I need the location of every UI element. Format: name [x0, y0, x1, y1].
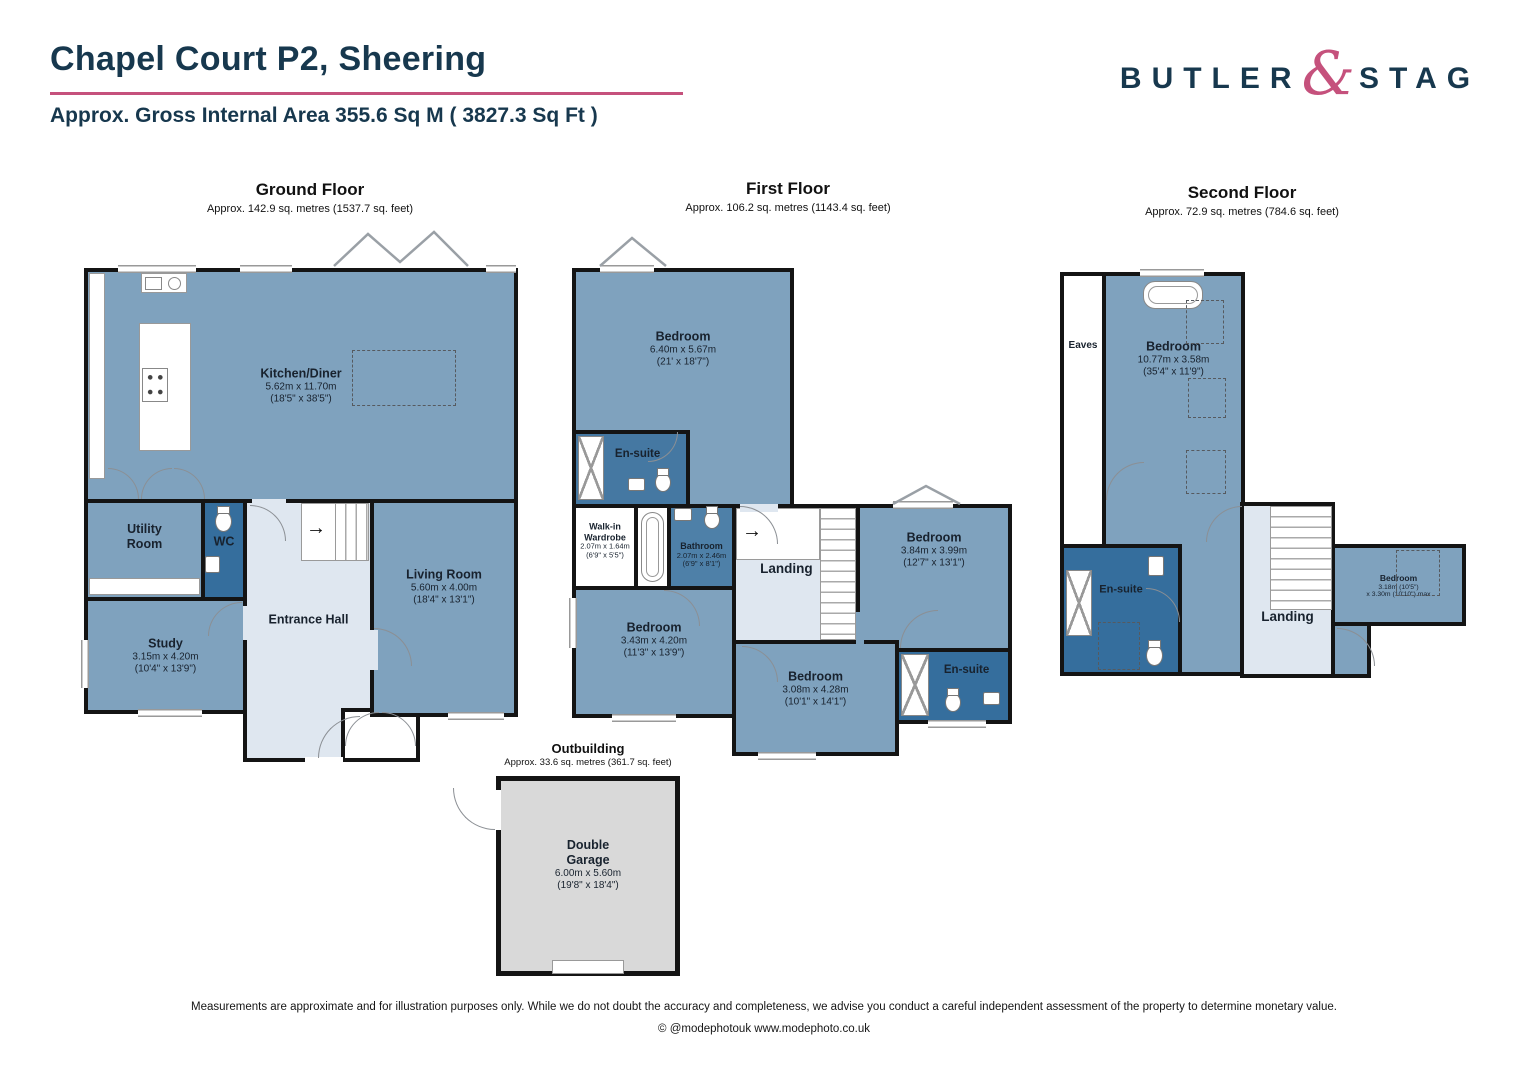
window [1140, 269, 1204, 277]
toilet-icon [655, 468, 671, 492]
shower-icon [1066, 570, 1092, 636]
disclaimer-text: Measurements are approximate and for ill… [0, 1001, 1528, 1013]
second-floor-header: Second Floor Approx. 72.9 sq. metres (78… [1092, 183, 1392, 218]
toilet-icon [1146, 640, 1163, 666]
first-floor-area: Approx. 106.2 sq. metres (1143.4 sq. fee… [638, 202, 938, 214]
room-label: Eaves [1069, 340, 1098, 352]
stove-icon [142, 368, 168, 402]
ground-floor-area: Approx. 142.9 sq. metres (1537.7 sq. fee… [160, 203, 460, 215]
room-label: Bedroom 3.08m x 4.28m (10'1" x 14'1") [782, 670, 848, 709]
stairs-treads [335, 503, 369, 561]
sink-icon [983, 692, 1000, 705]
window [893, 501, 953, 509]
stairs-direction-arrow: → [306, 518, 326, 538]
skylight-dashed [1396, 550, 1440, 596]
room-label: Utility Room [115, 522, 175, 552]
window [569, 598, 577, 648]
room-eaves: Eaves [1060, 272, 1106, 548]
sink-icon [674, 508, 692, 521]
room-label: Entrance Hall [263, 613, 355, 628]
window [758, 752, 816, 760]
photo-credit: © @modephotouk www.modephoto.co.uk [0, 1023, 1528, 1035]
room-label: Bedroom 3.84m x 3.99m (12'7" x 13'1") [901, 531, 967, 570]
stairs-treads [1270, 506, 1332, 610]
room-label: En-suite [1099, 584, 1142, 597]
page-title: Chapel Court P2, Sheering [50, 40, 486, 79]
title-underline [50, 92, 683, 95]
room-label: Study 3.15m x 4.20m (10'4" x 13'9") [132, 636, 198, 675]
window [486, 265, 516, 273]
outbuilding-title: Outbuilding [438, 741, 738, 756]
room-label: Bedroom 10.77m x 3.58m (35'4" x 11'9") [1138, 340, 1210, 379]
logo-butler: BUTLER [1120, 62, 1302, 96]
window [81, 640, 89, 688]
door-opening [856, 612, 864, 648]
room-label: Living Room 5.60m x 4.00m (18'4" x 13'1"… [405, 568, 483, 607]
window [118, 265, 196, 273]
second-floor-title: Second Floor [1092, 183, 1392, 203]
kitchen-sink-icon [141, 273, 187, 293]
toilet-icon [945, 688, 961, 712]
first-floor-title: First Floor [638, 179, 938, 199]
room-label: Landing [1261, 609, 1314, 625]
roof-zigzag [600, 238, 666, 266]
front-door-opening [305, 757, 343, 765]
window [612, 714, 676, 722]
room-label: En-suite [944, 664, 989, 678]
bathtub-icon [641, 512, 664, 582]
first-floor-header: First Floor Approx. 106.2 sq. metres (11… [638, 179, 938, 214]
kitchen-counter [89, 273, 105, 479]
ground-floor-title: Ground Floor [160, 180, 460, 200]
sink-icon [628, 478, 645, 491]
door-arc [453, 788, 495, 830]
room-label: Bathroom 2.07m x 2.46m (6'9" x 8'1") [671, 541, 733, 569]
room-bedroom-3: Bedroom 3.43m x 4.20m (11'3" x 13'9") [572, 586, 736, 718]
toilet-icon [704, 506, 720, 529]
window [600, 265, 654, 273]
door-opening [243, 606, 251, 640]
logo-ampersand-icon: & [1302, 44, 1355, 104]
second-floor-area: Approx. 72.9 sq. metres (784.6 sq. feet) [1092, 206, 1392, 218]
sink-icon [205, 556, 220, 573]
room-label: Kitchen/Diner 5.62m x 11.70m (18'5" x 38… [260, 366, 341, 405]
window [138, 709, 202, 717]
room-label: WC [214, 535, 235, 550]
roof-light-dashed [352, 350, 456, 406]
gross-internal-area: Approx. Gross Internal Area 355.6 Sq M (… [50, 104, 598, 128]
room-label: Double Garage 6.00m x 5.60m (19'8" x 18'… [549, 838, 627, 892]
floorplan-page: Chapel Court P2, Sheering Approx. Gross … [0, 0, 1528, 1080]
utility-worktop [89, 578, 200, 595]
room-label: Bedroom 6.40m x 5.67m (21' x 18'7") [650, 329, 716, 368]
window [448, 712, 504, 720]
shower-icon [901, 654, 929, 716]
room-double-garage: Double Garage 6.00m x 5.60m (19'8" x 18'… [496, 776, 680, 976]
butler-and-stag-logo: BUTLER & STAG [1120, 44, 1480, 114]
sink-icon [1148, 556, 1164, 576]
skylight-dashed [1186, 450, 1226, 494]
window [928, 720, 986, 728]
ground-floor-header: Ground Floor Approx. 142.9 sq. metres (1… [160, 180, 460, 215]
roof-zigzag [334, 232, 468, 266]
skylight-dashed [1188, 378, 1226, 418]
stairs-treads [820, 508, 856, 640]
room-label: Landing [760, 561, 813, 577]
logo-stag: STAG [1359, 62, 1480, 96]
skylight-dashed [1098, 622, 1140, 670]
shower-icon [578, 436, 604, 500]
skylight-dashed [1186, 300, 1224, 344]
outbuilding-area: Approx. 33.6 sq. metres (361.7 sq. feet) [438, 757, 738, 768]
room-walkin-wardrobe: Walk-in Wardrobe 2.07m x 1.64m (6'9" x 5… [572, 504, 638, 590]
toilet-icon [215, 506, 232, 532]
window [240, 265, 292, 273]
room-living-room: Living Room 5.60m x 4.00m (18'4" x 13'1"… [370, 499, 518, 717]
outbuilding-header: Outbuilding Approx. 33.6 sq. metres (361… [438, 741, 738, 768]
room-label: Walk-in Wardrobe 2.07m x 1.64m (6'9" x 5… [576, 521, 634, 560]
garage-door-threshold [552, 960, 624, 974]
